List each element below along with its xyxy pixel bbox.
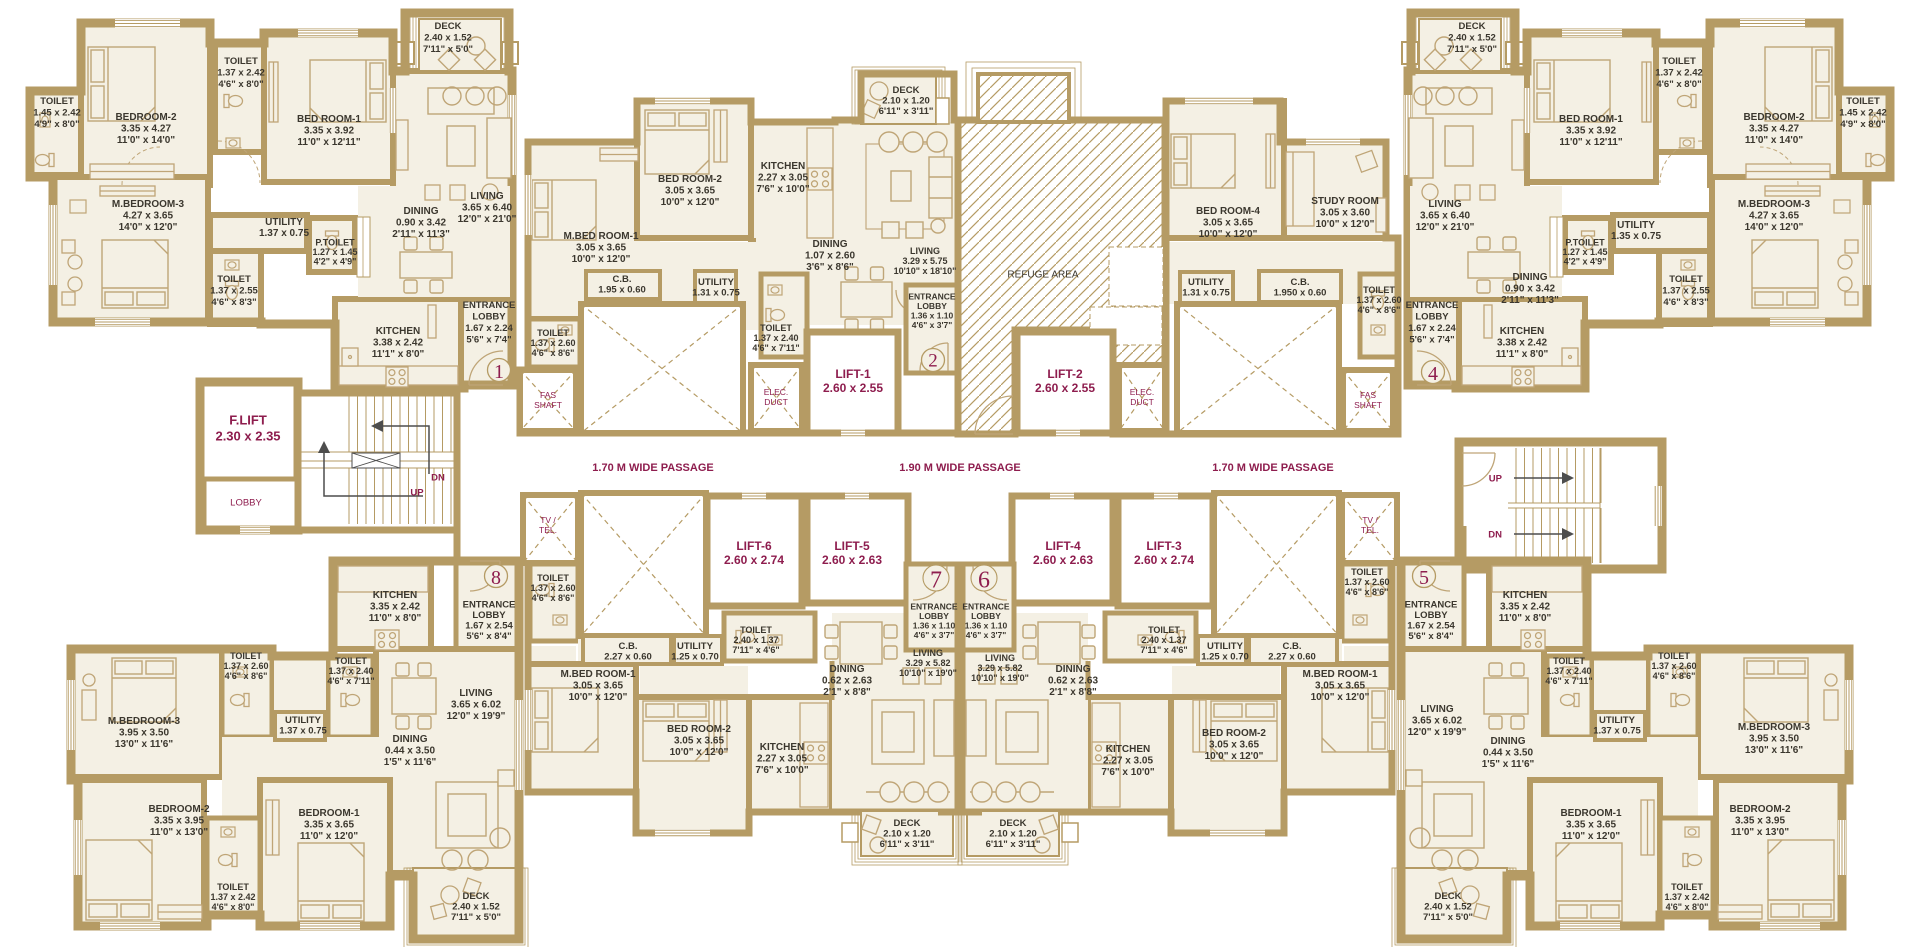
svg-text:BEDROOM-13.35 x 3.6511'0" x 12: BEDROOM-13.35 x 3.6511'0" x 12'0" (1560, 808, 1622, 842)
svg-text:TOILET1.45 x 2.424'9" x 8'0": TOILET1.45 x 2.424'9" x 8'0" (33, 96, 81, 130)
svg-text:TOILET1.37 x 2.604'6" x 8'6": TOILET1.37 x 2.604'6" x 8'6" (223, 651, 268, 681)
svg-text:UTILITY1.35 x 0.75: UTILITY1.35 x 0.75 (1611, 220, 1661, 242)
svg-text:ENTRANCELOBBY1.36 x 1.104'6" x: ENTRANCELOBBY1.36 x 1.104'6" x 3'7" (910, 602, 958, 641)
svg-text:5: 5 (1419, 567, 1429, 589)
svg-text:UTILITY1.25 x 0.70: UTILITY1.25 x 0.70 (671, 641, 719, 663)
svg-text:7: 7 (930, 567, 942, 593)
svg-text:BEDROOM-23.35 x 3.9511'0" x 13: BEDROOM-23.35 x 3.9511'0" x 13'0" (148, 804, 210, 838)
svg-text:ENTRANCELOBBY1.67 x 2.245'6" x: ENTRANCELOBBY1.67 x 2.245'6" x 7'4" (463, 300, 516, 346)
svg-text:ENTRANCELOBBY1.67 x 2.245'6" x: ENTRANCELOBBY1.67 x 2.245'6" x 7'4" (1406, 300, 1459, 346)
svg-text:ELEC.DUCT: ELEC.DUCT (764, 387, 789, 407)
svg-text:KITCHEN3.38 x 2.4211'1" x 8'0": KITCHEN3.38 x 2.4211'1" x 8'0" (372, 326, 425, 360)
svg-text:REFUGE AREA: REFUGE AREA (1007, 270, 1078, 281)
svg-text:TOILET1.37 x 2.604'6" x 8'6": TOILET1.37 x 2.604'6" x 8'6" (1356, 285, 1401, 315)
svg-text:ELEC.DUCT: ELEC.DUCT (1130, 387, 1155, 407)
svg-text:STUDY ROOM3.05 x 3.6010'0" x 1: STUDY ROOM3.05 x 3.6010'0" x 12'0" (1311, 196, 1379, 230)
svg-text:TV /TEL.: TV /TEL. (539, 515, 557, 535)
svg-text:4: 4 (1428, 363, 1438, 385)
svg-text:BED ROOM-13.35 x 3.9211'0" x 1: BED ROOM-13.35 x 3.9211'0" x 12'11" (1559, 114, 1623, 148)
svg-text:UTILITY1.31 x 0.75: UTILITY1.31 x 0.75 (692, 277, 740, 299)
svg-text:1: 1 (494, 361, 504, 383)
svg-text:6: 6 (978, 567, 990, 593)
svg-text:LOBBY: LOBBY (230, 497, 262, 508)
svg-text:BEDROOM-23.35 x 4.2711'0" x 14: BEDROOM-23.35 x 4.2711'0" x 14'0" (1743, 112, 1805, 146)
svg-text:TOILET1.37 x 2.424'6" x 8'0": TOILET1.37 x 2.424'6" x 8'0" (1664, 882, 1709, 912)
svg-text:TOILET1.45 x 2.424'9" x 8'0": TOILET1.45 x 2.424'9" x 8'0" (1839, 96, 1887, 130)
svg-text:BEDROOM-23.35 x 4.2711'0" x 14: BEDROOM-23.35 x 4.2711'0" x 14'0" (115, 112, 177, 146)
svg-text:TV /TEL.: TV /TEL. (1361, 515, 1379, 535)
svg-text:ENTRANCELOBBY1.36 x 1.104'6" x: ENTRANCELOBBY1.36 x 1.104'6" x 3'7" (962, 602, 1010, 641)
svg-text:TOILET1.37 x 2.604'6" x 8'6": TOILET1.37 x 2.604'6" x 8'6" (1344, 567, 1389, 597)
svg-text:UTILITY1.37 x 0.75: UTILITY1.37 x 0.75 (259, 217, 309, 239)
svg-text:TOILET1.37 x 2.424'6" x 8'0": TOILET1.37 x 2.424'6" x 8'0" (210, 882, 255, 912)
svg-text:TOILET1.37 x 2.604'6" x 8'6": TOILET1.37 x 2.604'6" x 8'6" (1651, 651, 1696, 681)
svg-text:UTILITY1.37 x 0.75: UTILITY1.37 x 0.75 (1593, 715, 1641, 737)
svg-text:ENTRANCELOBBY1.67 x 2.545'6" x: ENTRANCELOBBY1.67 x 2.545'6" x 8'4" (1405, 600, 1458, 643)
svg-text:KITCHEN2.27 x 3.057'6" x 10'0": KITCHEN2.27 x 3.057'6" x 10'0" (755, 742, 808, 776)
svg-text:BED ROOM-23.05 x 3.6510'0" x 1: BED ROOM-23.05 x 3.6510'0" x 12'0" (658, 174, 722, 208)
svg-text:P.TOILET1.27 x 1.454'2" x 4'9": P.TOILET1.27 x 1.454'2" x 4'9" (312, 238, 357, 267)
svg-text:BED ROOM-23.05 x 3.6510'0" x 1: BED ROOM-23.05 x 3.6510'0" x 12'0" (1202, 728, 1266, 762)
svg-text:UTILITY1.31 x 0.75: UTILITY1.31 x 0.75 (1182, 277, 1230, 299)
svg-text:UTILITY1.37 x 0.75: UTILITY1.37 x 0.75 (279, 715, 327, 737)
svg-text:1.70 M WIDE PASSAGE: 1.70 M WIDE PASSAGE (1212, 462, 1333, 474)
svg-text:KITCHEN3.38 x 2.4211'1" x 8'0": KITCHEN3.38 x 2.4211'1" x 8'0" (1496, 326, 1549, 360)
svg-text:KITCHEN2.27 x 3.057'6" x 10'0": KITCHEN2.27 x 3.057'6" x 10'0" (1101, 744, 1154, 778)
svg-text:BEDROOM-23.35 x 3.9511'0" x 13: BEDROOM-23.35 x 3.9511'0" x 13'0" (1729, 804, 1791, 838)
svg-text:BEDROOM-13.35 x 3.6511'0" x 12: BEDROOM-13.35 x 3.6511'0" x 12'0" (298, 808, 360, 842)
svg-text:TOILET1.37 x 2.424'6" x 8'0": TOILET1.37 x 2.424'6" x 8'0" (1655, 56, 1703, 90)
svg-text:1.90 M WIDE PASSAGE: 1.90 M WIDE PASSAGE (899, 462, 1020, 474)
svg-text:TOILET1.37 x 2.604'6" x 8'6": TOILET1.37 x 2.604'6" x 8'6" (530, 328, 575, 358)
svg-text:1.70 M WIDE PASSAGE: 1.70 M WIDE PASSAGE (592, 462, 713, 474)
svg-text:BED ROOM-23.05 x 3.6510'0" x 1: BED ROOM-23.05 x 3.6510'0" x 12'0" (667, 724, 731, 758)
svg-text:8: 8 (491, 567, 501, 589)
svg-text:DN: DN (1488, 529, 1502, 540)
svg-text:TOILET1.37 x 2.424'6" x 8'0": TOILET1.37 x 2.424'6" x 8'0" (217, 56, 265, 90)
svg-text:ENTRANCELOBBY1.67 x 2.545'6" x: ENTRANCELOBBY1.67 x 2.545'6" x 8'4" (463, 600, 516, 643)
svg-text:2: 2 (928, 351, 938, 372)
svg-text:KITCHEN3.35 x 2.4211'0" x 8'0": KITCHEN3.35 x 2.4211'0" x 8'0" (369, 590, 422, 624)
svg-text:UTILITY1.25 x 0.70: UTILITY1.25 x 0.70 (1201, 641, 1249, 663)
svg-text:P.TOILET1.27 x 1.454'2" x 4'9": P.TOILET1.27 x 1.454'2" x 4'9" (1562, 238, 1607, 267)
svg-text:TOILET1.37 x 2.604'6" x 8'6": TOILET1.37 x 2.604'6" x 8'6" (530, 573, 575, 603)
svg-text:KITCHEN3.35 x 2.4211'0" x 8'0": KITCHEN3.35 x 2.4211'0" x 8'0" (1499, 590, 1552, 624)
svg-text:BED ROOM-13.35 x 3.9211'0" x 1: BED ROOM-13.35 x 3.9211'0" x 12'11" (297, 114, 361, 148)
svg-text:UP: UP (1489, 473, 1503, 484)
svg-text:BED ROOM-43.05 x 3.6510'0" x 1: BED ROOM-43.05 x 3.6510'0" x 12'0" (1196, 206, 1260, 240)
svg-text:DN: DN (431, 472, 445, 483)
svg-text:KITCHEN2.27 x 3.057'6" x 10'0": KITCHEN2.27 x 3.057'6" x 10'0" (756, 161, 809, 195)
svg-text:UP: UP (410, 487, 424, 498)
svg-text:ENTRANCELOBBY1.36 x 1.104'6" x: ENTRANCELOBBY1.36 x 1.104'6" x 3'7" (908, 292, 956, 331)
